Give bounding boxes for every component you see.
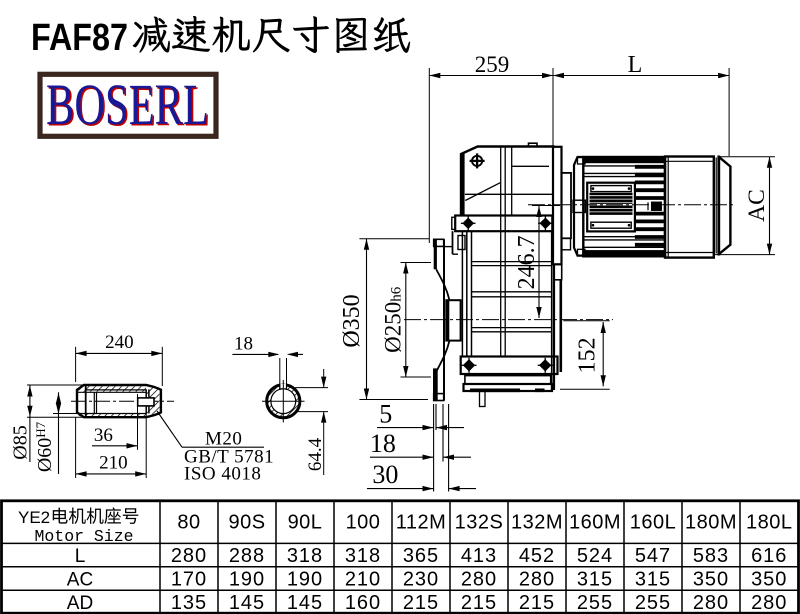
svg-text:315: 315: [577, 568, 613, 590]
svg-text:583: 583: [693, 545, 729, 567]
svg-text:259: 259: [475, 52, 510, 77]
svg-text:160: 160: [345, 592, 381, 614]
svg-text:160M: 160M: [569, 512, 621, 534]
svg-text:132S: 132S: [455, 512, 504, 534]
svg-text:80: 80: [177, 512, 200, 534]
svg-text:152: 152: [575, 337, 601, 373]
svg-text:Ø350: Ø350: [339, 294, 365, 347]
svg-text:135: 135: [171, 592, 207, 614]
svg-text:452: 452: [519, 545, 555, 567]
svg-text:246.7: 246.7: [514, 235, 540, 289]
svg-text:616: 616: [751, 545, 787, 567]
svg-text:318: 318: [287, 545, 323, 567]
svg-text:90L: 90L: [288, 512, 323, 534]
svg-text:FAF87: FAF87: [31, 17, 128, 59]
svg-text:365: 365: [403, 545, 439, 567]
svg-text:170: 170: [171, 568, 207, 590]
svg-text:288: 288: [229, 545, 265, 567]
svg-text:280: 280: [461, 568, 497, 590]
svg-text:64.4: 64.4: [305, 437, 326, 471]
svg-text:90S: 90S: [228, 512, 265, 534]
svg-text:210: 210: [99, 453, 128, 474]
svg-text:36: 36: [94, 425, 113, 446]
svg-text:524: 524: [577, 545, 613, 567]
svg-text:145: 145: [229, 592, 265, 614]
svg-text:318: 318: [345, 545, 381, 567]
svg-text:280: 280: [751, 592, 787, 614]
svg-text:YE2: YE2: [18, 508, 50, 527]
svg-text:190: 190: [229, 568, 265, 590]
svg-text:215: 215: [403, 592, 439, 614]
svg-text:547: 547: [635, 545, 671, 567]
svg-text:L: L: [628, 52, 643, 78]
svg-text:18: 18: [234, 334, 253, 355]
svg-text:350: 350: [693, 568, 729, 590]
svg-text:18: 18: [370, 429, 396, 458]
svg-text:AC: AC: [744, 189, 770, 222]
svg-text:413: 413: [461, 545, 497, 567]
svg-text:30: 30: [372, 460, 398, 489]
svg-text:210: 210: [345, 568, 381, 590]
svg-text:AD: AD: [67, 593, 93, 614]
svg-text:215: 215: [461, 592, 497, 614]
svg-text:280: 280: [171, 545, 207, 567]
svg-text:Ø85: Ø85: [10, 425, 32, 459]
svg-text:BOSERL: BOSERL: [46, 72, 209, 137]
svg-text:145: 145: [287, 592, 323, 614]
svg-text:AC: AC: [67, 569, 93, 590]
svg-text:190: 190: [287, 568, 323, 590]
svg-text:230: 230: [403, 568, 439, 590]
svg-text:350: 350: [751, 568, 787, 590]
svg-text:5: 5: [379, 400, 392, 429]
svg-text:255: 255: [577, 592, 613, 614]
svg-text:112M: 112M: [396, 512, 447, 534]
svg-text:280: 280: [519, 568, 555, 590]
svg-text:L: L: [75, 546, 86, 567]
svg-text:100: 100: [346, 512, 381, 534]
svg-text:315: 315: [635, 568, 671, 590]
svg-text:132M: 132M: [511, 512, 563, 534]
svg-text:240: 240: [105, 332, 134, 353]
svg-text:180M: 180M: [685, 512, 737, 534]
svg-text:255: 255: [635, 592, 671, 614]
svg-text:160L: 160L: [630, 512, 677, 534]
svg-text:280: 280: [693, 592, 729, 614]
svg-text:ISO 4018: ISO 4018: [184, 464, 261, 485]
svg-text:180L: 180L: [746, 512, 793, 534]
svg-text:215: 215: [519, 592, 555, 614]
svg-text:Motor Size: Motor Size: [34, 527, 133, 546]
